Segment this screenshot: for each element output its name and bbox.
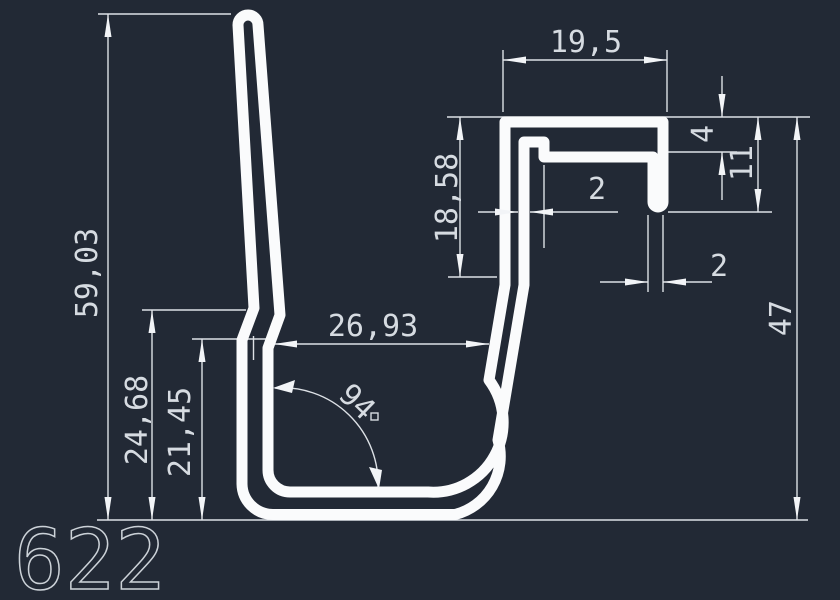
arrow-24-up bbox=[149, 310, 156, 333]
arrow-2lip-right bbox=[663, 279, 686, 286]
arrow-19-right bbox=[644, 57, 667, 64]
arrow-59-up bbox=[105, 14, 112, 37]
arrow-18-up bbox=[457, 117, 464, 140]
dimension-lines bbox=[97, 14, 810, 520]
label-left-inner-height: 21,45 bbox=[163, 387, 198, 477]
cad-drawing-canvas: 59,03 24,68 21,45 18,58 4 11 47 19,5 26,… bbox=[0, 0, 840, 600]
arrow-47-down bbox=[794, 497, 801, 520]
label-inner-width: 26,93 bbox=[328, 309, 418, 344]
arrow-11-up bbox=[755, 117, 762, 140]
profile-outline bbox=[238, 15, 663, 515]
arrow-angle-bottom bbox=[369, 467, 382, 489]
label-lip-thickness: 2 bbox=[710, 249, 728, 284]
arrow-11-down bbox=[755, 189, 762, 212]
arrow-19-left bbox=[503, 57, 526, 64]
degree-symbol bbox=[371, 413, 378, 420]
arrow-47-up bbox=[794, 117, 801, 140]
arrow-2lip-left bbox=[625, 279, 648, 286]
arrow-21-down bbox=[199, 497, 206, 520]
label-left-outer-height: 24,68 bbox=[120, 375, 155, 465]
arrow-angle-top bbox=[273, 380, 295, 393]
label-wall-thickness: 2 bbox=[588, 172, 606, 207]
label-hook-depth: 11 bbox=[725, 145, 760, 181]
arrow-18-down bbox=[457, 254, 464, 277]
label-top-hook-offset: 4 bbox=[686, 125, 721, 143]
label-slot-depth: 18,58 bbox=[430, 153, 465, 243]
dim-2-lip-lines bbox=[600, 215, 712, 292]
dimension-labels: 59,03 24,68 21,45 18,58 4 11 47 19,5 26,… bbox=[70, 25, 799, 477]
label-total-height: 59,03 bbox=[70, 228, 105, 318]
label-right-height: 47 bbox=[764, 300, 799, 336]
arrow-2wall-right bbox=[530, 209, 553, 216]
dimension-arrows bbox=[105, 14, 801, 520]
dim-21-lines bbox=[192, 339, 266, 520]
arrow-21-up bbox=[199, 339, 206, 362]
cad-drawing: 59,03 24,68 21,45 18,58 4 11 47 19,5 26,… bbox=[0, 0, 840, 600]
label-top-width: 19,5 bbox=[550, 25, 622, 60]
arrow-26-right bbox=[466, 341, 489, 348]
arrow-26-left bbox=[274, 341, 297, 348]
arrow-4-top bbox=[719, 94, 726, 117]
part-number: 622 bbox=[14, 511, 166, 600]
